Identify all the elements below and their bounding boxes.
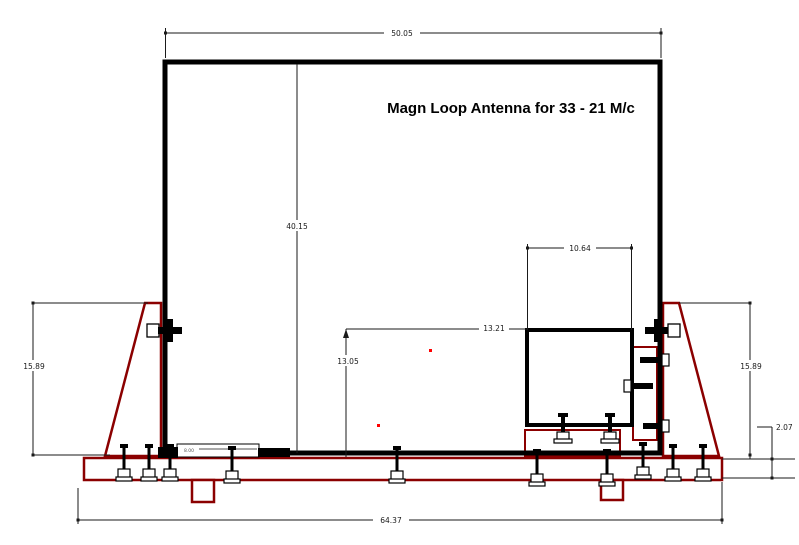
drawing-svg: 50.05 40.15 10.64 13.21 [0,0,799,545]
dim-base-thickness: 2.07 [722,423,795,480]
capacitor-end-right [258,448,290,457]
dim-base-thickness-label: 2.07 [776,423,793,432]
right-bolt-cross [654,319,662,342]
left-bolt-head [147,324,159,337]
tuning-box [527,330,632,425]
dim-right-support-label: 15.89 [740,362,762,371]
dim-box-base-height: 13.05 [332,329,363,457]
frame-bolt-2-head [624,380,631,392]
frame-bolt-2 [630,383,653,389]
dim-left-support-label: 15.89 [23,362,45,371]
dim-box-width-label: 10.64 [569,244,591,253]
red-marker-dot [429,349,432,352]
dim-box-top-offset-label: 13.21 [483,324,505,333]
main-loop [165,62,660,453]
left-bolt-cross [165,319,173,342]
dim-base-width-label: 64.37 [380,516,402,525]
frame-bolt-3-head [662,420,669,432]
dim-small-detail-label: 8.00 [184,448,194,454]
capacitor-end-left [158,447,178,458]
red-marker-dot [377,424,380,427]
dim-top-width-label: 50.05 [391,29,413,38]
loop-conductor [165,62,660,453]
base-foot-left [192,480,214,502]
frame-bolt-3 [643,423,663,429]
bottom-components [158,444,290,458]
drawing-title: Magn Loop Antenna for 33 - 21 M/c [387,100,635,117]
dim-loop-height: 40.15 [282,64,312,453]
bolt-icon [601,413,619,443]
dim-box-top-offset: 13.21 [346,322,527,333]
dim-box-width: 10.64 [526,242,633,330]
dim-loop-height-label: 40.15 [286,222,308,231]
dim-box-base-height-label: 13.05 [337,357,359,366]
dim-base-width: 64.37 [77,482,724,525]
frame-bolt-1 [640,357,663,363]
antenna-drawing: 50.05 40.15 10.64 13.21 [0,0,799,545]
dim-top-width: 50.05 [164,27,663,58]
right-bolt-head [668,324,680,337]
bolt-icon [554,413,572,443]
frame-bolt-1-head [662,354,669,366]
